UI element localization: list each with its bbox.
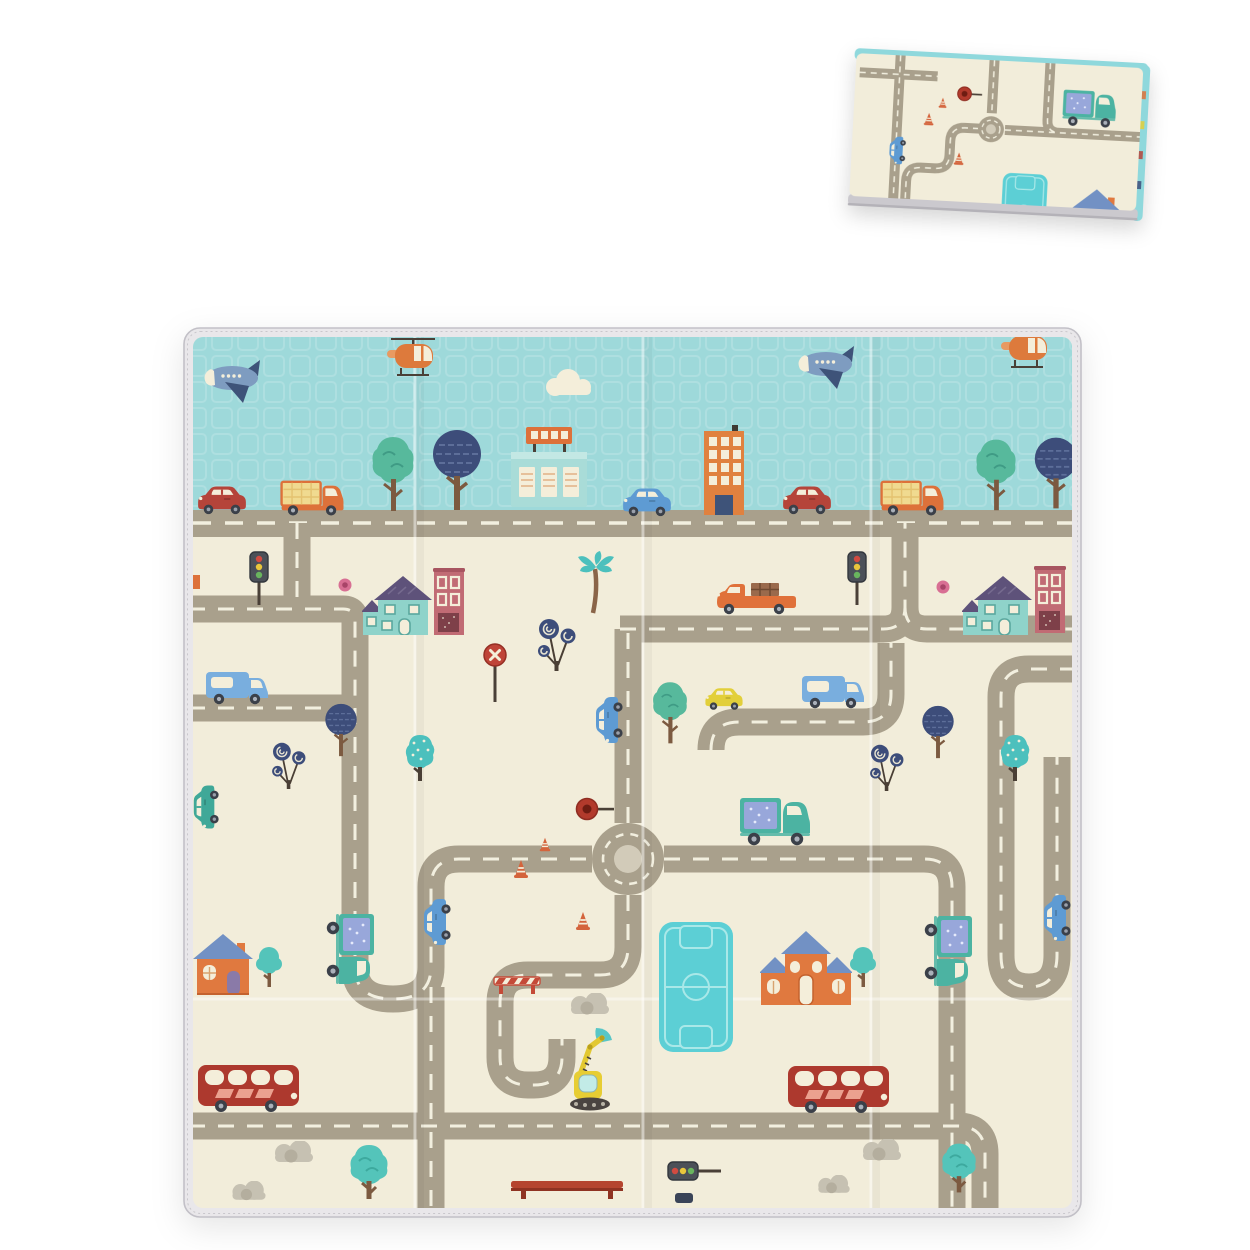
sky-texture <box>193 337 1072 510</box>
pool-playfield <box>659 922 733 1052</box>
red-building-icon <box>433 568 465 635</box>
red-building-icon <box>1034 566 1066 633</box>
red-bus-icon <box>788 1066 889 1113</box>
partial-vehicle-edge <box>193 575 200 589</box>
pink-lollipop-icon <box>339 579 352 592</box>
red-bus-icon <box>198 1065 299 1112</box>
folded-mat <box>847 48 1151 225</box>
product-photo <box>0 0 1250 1250</box>
orange-tower-icon <box>704 425 744 515</box>
roundabout <box>592 823 664 895</box>
pink-lollipop-icon <box>937 581 950 594</box>
pool-playfield <box>999 173 1048 226</box>
partial-car <box>675 1193 693 1203</box>
unfolded-mat <box>183 327 1082 1218</box>
